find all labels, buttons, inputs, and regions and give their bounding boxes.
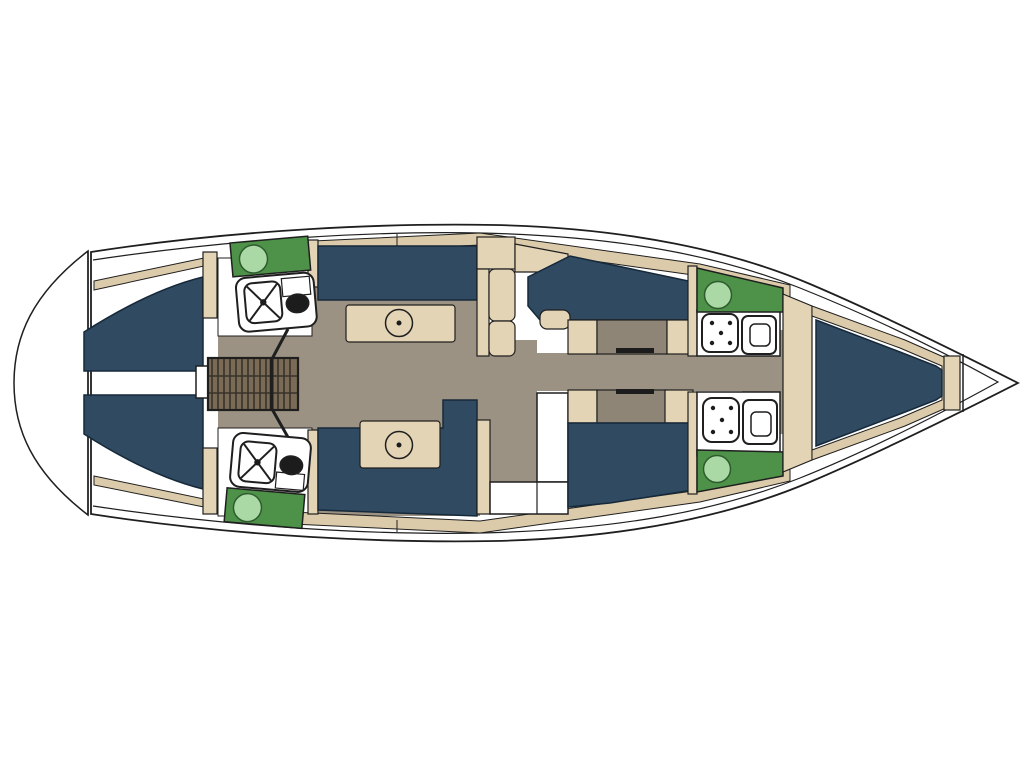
shower-tray-icon — [703, 398, 739, 442]
berth-seat — [568, 320, 597, 354]
toilet-icon — [743, 400, 777, 444]
deck-plan-canvas — [0, 0, 1024, 768]
mid-cabin-bottom — [568, 389, 693, 507]
head-bottom-sink-icon — [704, 456, 731, 483]
bow-headboard — [783, 294, 812, 472]
saloon-table-bottom — [360, 421, 440, 468]
shower-tray-icon — [702, 314, 738, 352]
berth-step — [597, 390, 667, 423]
galley-wall-bottom — [203, 448, 217, 514]
head-wall-bottom — [688, 392, 697, 494]
day-head-wall — [477, 420, 490, 514]
head-wall-top — [688, 266, 697, 356]
galley-bottom — [224, 432, 312, 529]
corridor-floor — [477, 353, 788, 391]
stove-burner-icon — [244, 281, 283, 324]
companionway-stairs — [208, 358, 298, 410]
stern-swim-platform — [14, 251, 88, 515]
saloon-table-top — [346, 305, 455, 342]
cabin-door-top[interactable] — [616, 348, 654, 353]
berth-cushion — [540, 310, 570, 329]
toilet-icon — [742, 316, 776, 354]
galley-wall-top — [203, 252, 217, 318]
locker-row — [490, 482, 568, 514]
head-bottom — [688, 392, 783, 494]
head-top-sink-icon — [705, 282, 732, 309]
cabin-door-bottom[interactable] — [616, 389, 654, 394]
day-head-compartment — [537, 393, 568, 482]
yacht-deck-plan — [0, 0, 1024, 768]
aft-center-gap — [92, 371, 203, 395]
berth-foot-shelf — [944, 356, 960, 410]
stove-burner-icon — [238, 441, 277, 484]
berth-seat — [568, 390, 597, 423]
galley-top-basin-icon — [286, 293, 309, 313]
galley-bottom-basin-icon — [280, 455, 303, 475]
saloon-bench-top — [318, 246, 477, 300]
galley-top — [230, 236, 318, 333]
